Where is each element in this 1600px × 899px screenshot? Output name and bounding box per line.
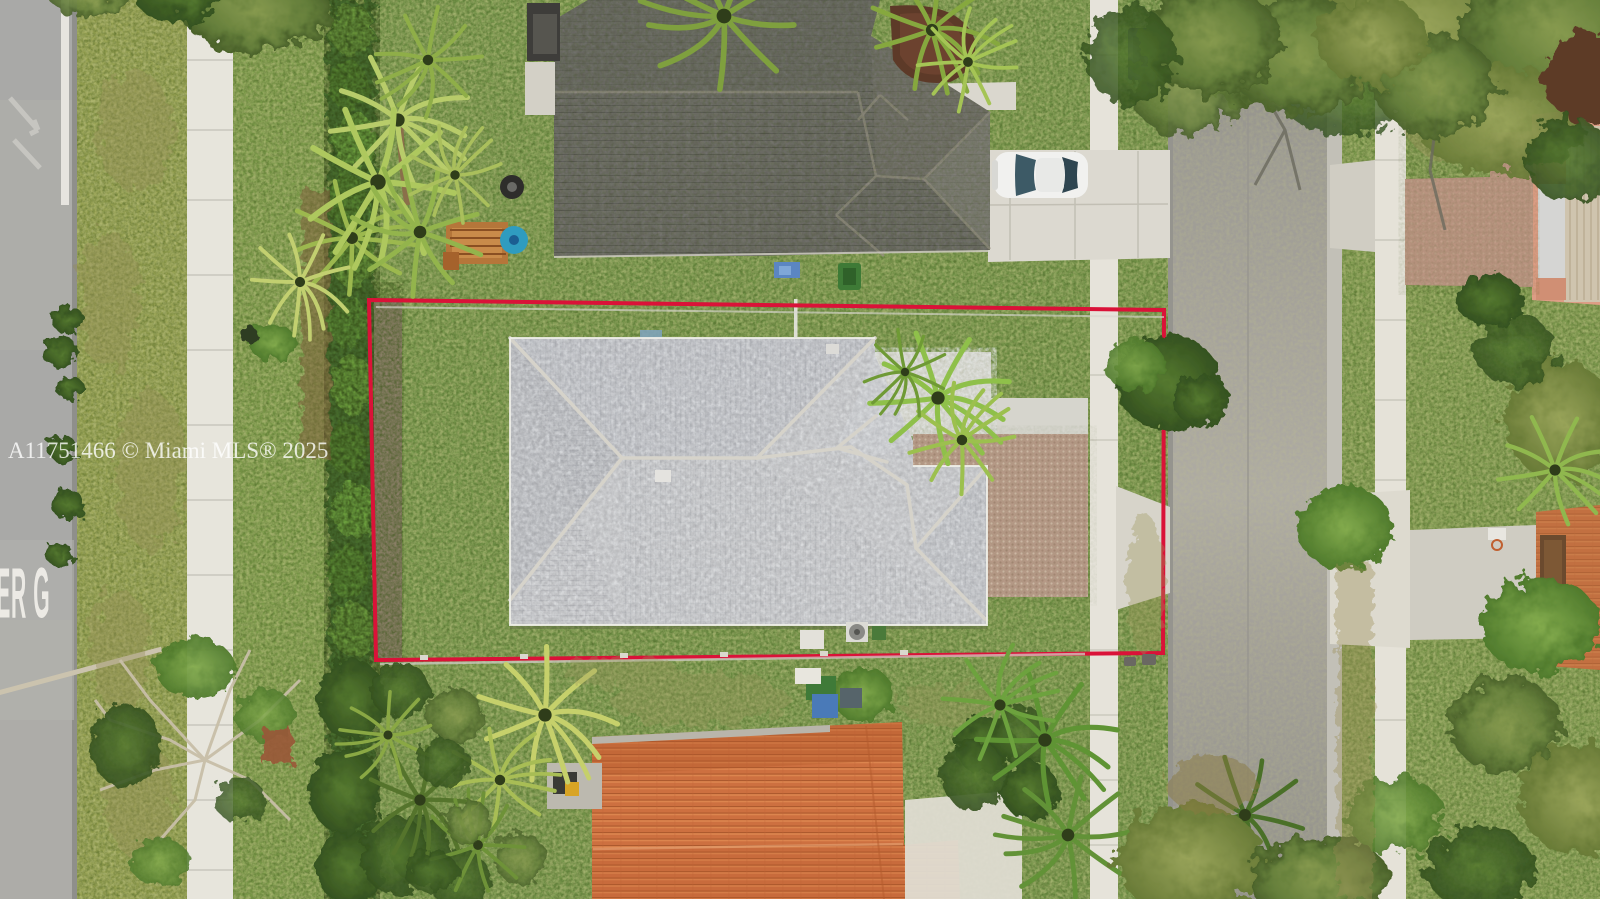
svg-text:ER G: ER G — [0, 554, 50, 634]
svg-text:A11751466 © Miami MLS® 2025: A11751466 © Miami MLS® 2025 — [8, 438, 328, 463]
